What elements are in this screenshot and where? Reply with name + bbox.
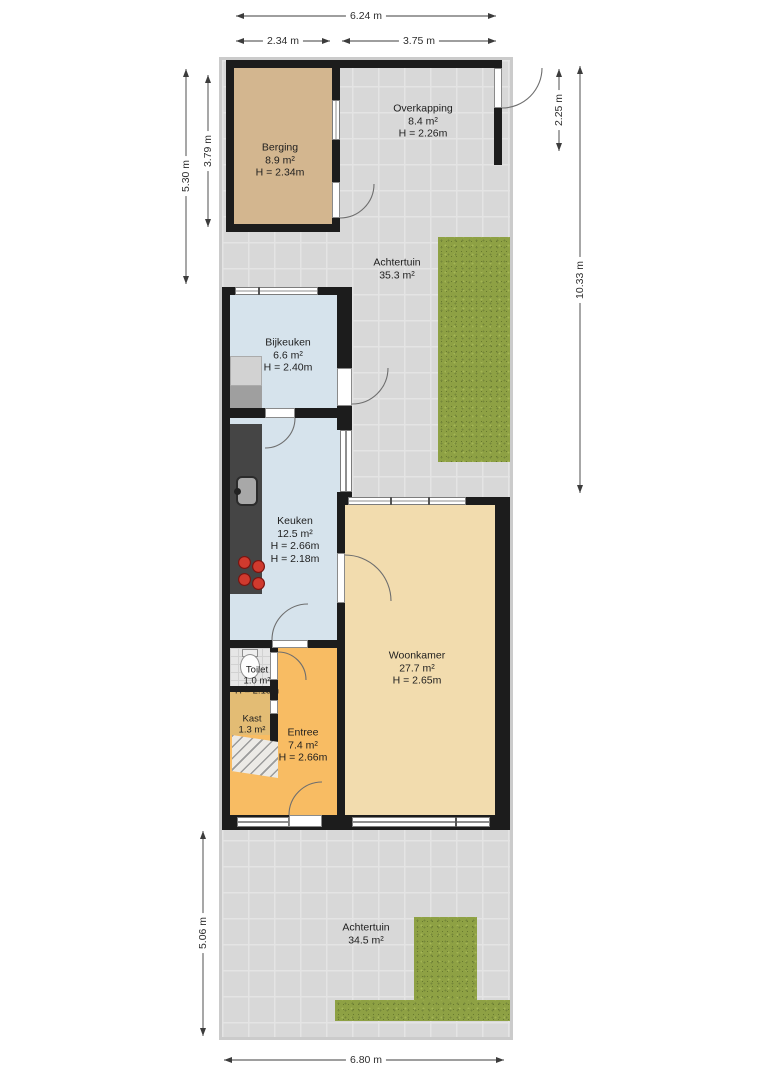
room-name: Achtertuin (373, 257, 420, 270)
room-label-entree: Entree 7.4 m² H = 2.66m (279, 726, 328, 764)
room-label-overkapping: Overkapping 8.4 m² H = 2.26m (393, 102, 453, 140)
dim-right-top: 2.25 m (553, 90, 565, 130)
room-name: Woonkamer (389, 649, 445, 662)
room-height-2: H = 2.18m (271, 553, 320, 566)
room-area: 8.9 m² (256, 154, 305, 167)
room-name: Overkapping (393, 102, 453, 115)
door-bijkeuken-garden (337, 368, 352, 406)
room-height: H = 2.40m (264, 361, 313, 374)
dim-left-outer: 5.30 m (180, 156, 192, 196)
window-mullion (390, 497, 392, 505)
door-overkapping (494, 68, 502, 108)
window-mullion (258, 287, 260, 295)
window-mullion (455, 817, 457, 827)
room-height: H = 2.15m (235, 686, 279, 697)
front-door (289, 815, 322, 827)
stove-burner (252, 560, 265, 573)
dim-top-left: 2.34 m (263, 35, 303, 47)
door-bijkeuken-keuken (265, 408, 295, 418)
room-height: H = 2.66m (279, 751, 328, 764)
room-height: H = 2.65m (389, 674, 445, 687)
window-entree-bottom (237, 817, 289, 827)
room-label-achtertuin-boven: Achtertuin 35.3 m² (373, 257, 420, 282)
appliance-bijkeuken-2 (230, 386, 262, 408)
dim-bottom-left: 5.06 m (197, 913, 209, 953)
dim-top-right: 3.75 m (399, 35, 439, 47)
room-label-berging: Berging 8.9 m² H = 2.34m (256, 141, 305, 179)
room-area: 35.3 m² (373, 269, 420, 282)
wall-divider-left (230, 408, 265, 418)
room-label-keuken: Keuken 12.5 m² H = 2.66m H = 2.18m (271, 515, 320, 565)
appliance-bijkeuken (230, 356, 262, 386)
stove-burner (252, 577, 265, 590)
stairs (232, 735, 278, 778)
door-kast (270, 700, 278, 714)
floor-plan: 6.24 m 2.34 m 3.75 m 5.30 m 3.79 m 2.25 … (0, 0, 764, 1080)
window-woonkamer-top (348, 497, 466, 505)
window-woonkamer-bottom (352, 817, 490, 827)
room-area: 8.4 m² (393, 115, 453, 128)
window-berging (332, 100, 340, 140)
dim-top-total: 6.24 m (346, 10, 386, 22)
dim-left-inner: 3.79 m (202, 131, 214, 171)
room-name: Keuken (271, 515, 320, 528)
door-keuken-entree (272, 640, 308, 648)
dim-right-total: 10.33 m (574, 257, 586, 303)
room-name: Achtertuin (342, 922, 389, 935)
wall-overkapping-right (494, 108, 502, 165)
room-area: 12.5 m² (271, 528, 320, 541)
room-name: Entree (279, 726, 328, 739)
room-area: 6.6 m² (264, 349, 313, 362)
room-label-kast: Kast 1.3 m² (239, 715, 266, 736)
room-area: 7.4 m² (279, 739, 328, 752)
room-height: H = 2.26m (393, 127, 453, 140)
sink (236, 476, 258, 506)
window-keuken-right (340, 430, 352, 492)
room-name: Berging (256, 141, 305, 154)
room-label-bijkeuken: Bijkeuken 6.6 m² H = 2.40m (264, 336, 313, 374)
room-height: H = 2.34m (256, 166, 305, 179)
door-berging (332, 182, 340, 218)
grass-patch-bottom-strip (335, 1000, 510, 1021)
room-label-toilet: Toilet 1.0 m² H = 2.15m (235, 665, 279, 697)
room-label-woonkamer: Woonkamer 27.7 m² H = 2.65m (389, 649, 445, 687)
room-name: Kast (239, 715, 266, 726)
grass-patch-top (438, 237, 510, 462)
dim-bottom-total: 6.80 m (346, 1054, 386, 1066)
room-area: 27.7 m² (389, 662, 445, 675)
room-height: H = 2.66m (271, 540, 320, 553)
window-bijkeuken-top (235, 287, 318, 295)
wall-divider-right (295, 408, 337, 418)
wall-bijkeuken-right (337, 287, 352, 368)
door-keuken-woonkamer (337, 553, 345, 603)
stove-burner (238, 556, 251, 569)
window-mullion (428, 497, 430, 505)
room-name: Toilet (235, 665, 279, 676)
room-label-achtertuin-onder: Achtertuin 34.5 m² (342, 922, 389, 947)
room-area: 1.3 m² (239, 725, 266, 736)
room-area: 34.5 m² (342, 934, 389, 947)
room-name: Bijkeuken (264, 336, 313, 349)
wall-overkapping-top (340, 60, 502, 68)
wall-keuken-right-upper (337, 406, 352, 430)
stove-burner (238, 573, 251, 586)
